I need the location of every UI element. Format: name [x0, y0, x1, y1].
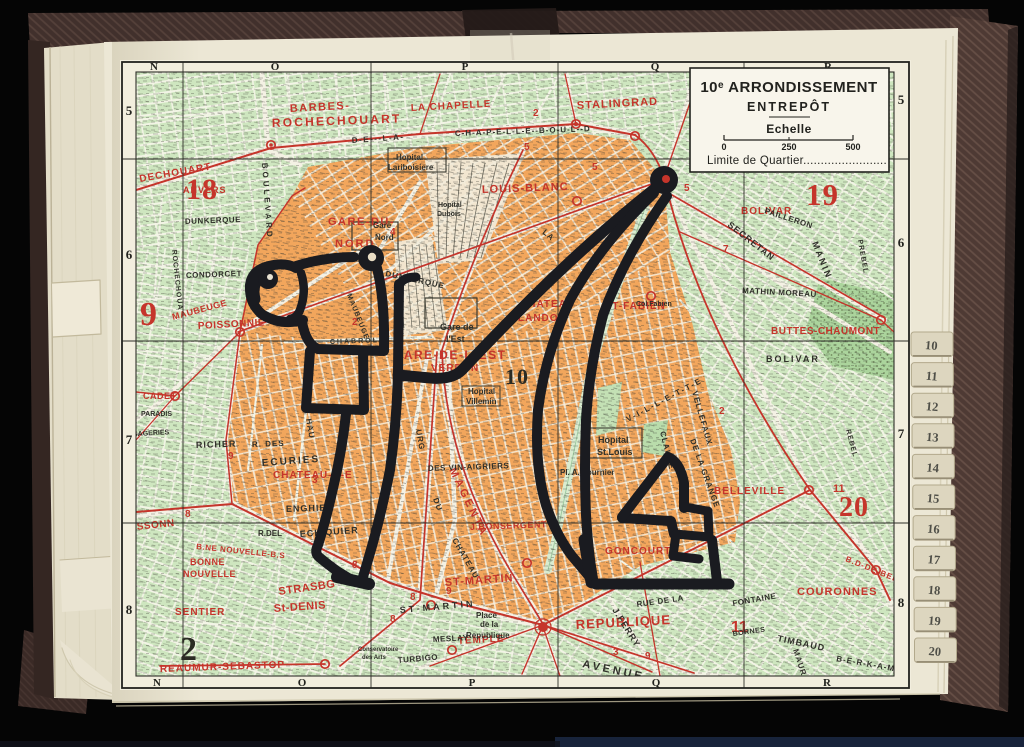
svg-text:7: 7 — [723, 244, 729, 255]
svg-text:Dubois: Dubois — [437, 211, 461, 218]
svg-text:BELLEVILLE: BELLEVILLE — [714, 486, 785, 497]
svg-text:8: 8 — [390, 614, 396, 625]
svg-text:8: 8 — [352, 560, 358, 571]
svg-text:19: 19 — [806, 177, 839, 212]
svg-text:5: 5 — [524, 142, 530, 153]
svg-text:Hopital: Hopital — [468, 387, 495, 396]
svg-text:15: 15 — [926, 491, 940, 506]
svg-text:10: 10 — [505, 364, 529, 389]
svg-text:Lariboisiere: Lariboisiere — [388, 163, 434, 172]
svg-text:R. DES: R. DES — [252, 439, 285, 449]
svg-text:2: 2 — [719, 406, 725, 417]
svg-text:14: 14 — [926, 460, 940, 475]
svg-text:RICHER: RICHER — [196, 439, 237, 450]
svg-text:de la: de la — [480, 620, 499, 629]
svg-text:2: 2 — [533, 108, 539, 119]
svg-text:8: 8 — [126, 602, 133, 617]
svg-text:P: P — [462, 61, 469, 73]
svg-text:12: 12 — [925, 399, 939, 414]
svg-text:BUTTES-CHAUMONT: BUTTES-CHAUMONT — [771, 326, 880, 337]
svg-text:Gare: Gare — [373, 221, 392, 230]
svg-text:CADET: CADET — [143, 391, 177, 401]
svg-text:Villemin: Villemin — [466, 397, 497, 406]
svg-text:N: N — [153, 677, 161, 689]
svg-text:Echelle: Echelle — [766, 122, 812, 136]
svg-text:18: 18 — [186, 173, 218, 206]
svg-text:Q: Q — [651, 61, 660, 73]
svg-text:COURONNES: COURONNES — [797, 586, 878, 598]
svg-text:Nord: Nord — [375, 233, 394, 242]
svg-text:Hopital: Hopital — [438, 202, 462, 209]
svg-text:10e ARRONDISSEMENT: 10e ARRONDISSEMENT — [700, 79, 877, 96]
svg-text:5: 5 — [126, 103, 133, 118]
svg-text:18: 18 — [927, 583, 941, 598]
svg-text:des Arts: des Arts — [362, 655, 386, 661]
svg-text:R: R — [823, 677, 832, 689]
svg-text:5: 5 — [684, 183, 690, 194]
svg-text:Hopital: Hopital — [598, 435, 629, 445]
svg-text:Place: Place — [476, 611, 497, 620]
svg-text:St.Louis: St.Louis — [597, 447, 633, 457]
svg-text:3: 3 — [613, 647, 619, 658]
svg-text:8: 8 — [185, 509, 191, 520]
svg-text:MESLAY: MESLAY — [433, 633, 469, 644]
svg-text:5: 5 — [898, 92, 905, 107]
svg-text:GONCOURT: GONCOURT — [605, 546, 671, 557]
svg-text:10: 10 — [925, 338, 939, 353]
svg-text:N: N — [150, 61, 158, 73]
svg-text:BOLIVAR: BOLIVAR — [766, 354, 820, 364]
svg-text:Hopital: Hopital — [396, 153, 423, 162]
svg-text:16: 16 — [927, 522, 941, 537]
svg-text:PARADIS: PARADIS — [141, 411, 172, 418]
svg-text:3: 3 — [312, 475, 318, 486]
svg-text:ENTREPÔT: ENTREPÔT — [747, 99, 831, 114]
svg-text:Col.Fabien: Col.Fabien — [636, 301, 672, 308]
svg-text:Conservatoire: Conservatoire — [358, 647, 399, 653]
svg-text:GARE-DE-L-EST: GARE-DE-L-EST — [393, 348, 507, 362]
svg-text:8: 8 — [410, 592, 416, 603]
svg-text:O: O — [271, 61, 280, 73]
svg-text:250: 250 — [781, 142, 796, 152]
svg-text:500: 500 — [845, 142, 860, 152]
svg-text:7: 7 — [126, 432, 133, 447]
svg-text:9: 9 — [228, 451, 234, 462]
svg-text:NOUVELLE: NOUVELLE — [183, 569, 236, 579]
svg-text:7: 7 — [898, 426, 905, 441]
svg-text:13: 13 — [926, 430, 940, 445]
svg-text:5: 5 — [592, 162, 598, 173]
svg-text:6: 6 — [126, 247, 133, 262]
svg-text:20: 20 — [928, 644, 942, 659]
svg-text:19: 19 — [928, 613, 942, 628]
svg-text:Limite de Quartier............: Limite de Quartier......................… — [707, 155, 887, 167]
svg-text:11: 11 — [925, 369, 938, 384]
svg-text:17: 17 — [927, 552, 941, 567]
svg-text:Q: Q — [652, 677, 661, 689]
svg-text:R.DEL: R.DEL — [258, 529, 282, 538]
svg-text:O: O — [298, 677, 307, 689]
svg-text:9: 9 — [140, 296, 158, 333]
svg-text:P: P — [469, 677, 476, 689]
svg-text:BONNE: BONNE — [190, 557, 225, 567]
svg-text:8: 8 — [898, 595, 905, 610]
svg-text:Republique: Republique — [466, 631, 510, 640]
svg-text:Gare de: Gare de — [440, 322, 474, 332]
svg-text:6: 6 — [898, 235, 905, 250]
svg-text:20: 20 — [839, 492, 869, 523]
svg-text:9: 9 — [446, 586, 452, 597]
svg-text:0: 0 — [721, 142, 726, 152]
svg-text:l'Est: l'Est — [446, 334, 465, 344]
svg-text:9: 9 — [645, 651, 651, 662]
